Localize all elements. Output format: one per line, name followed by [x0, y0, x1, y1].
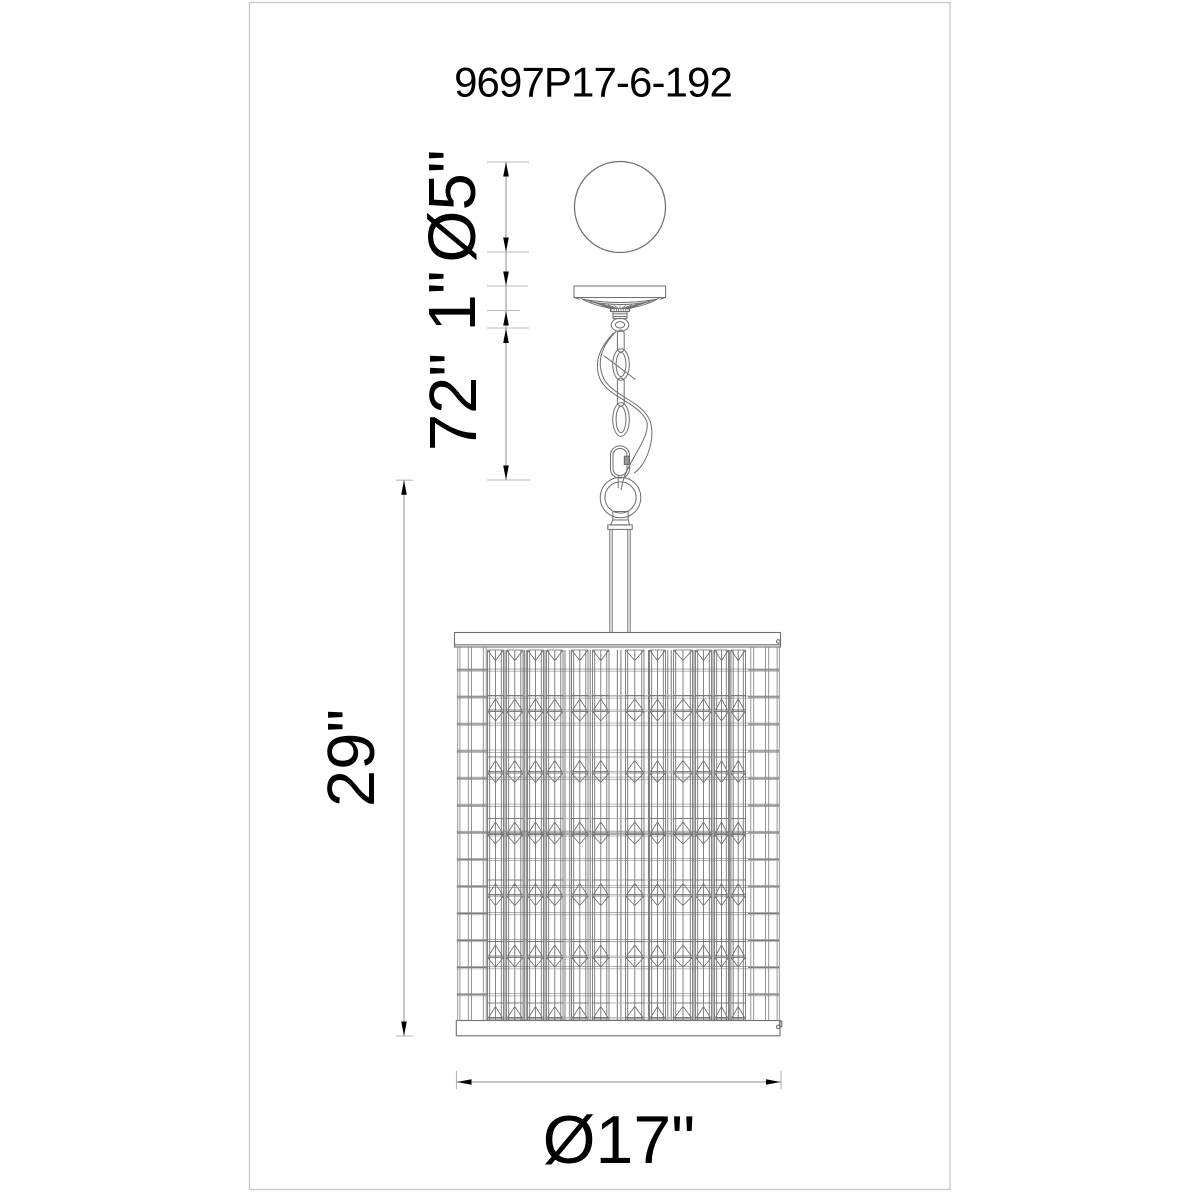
svg-text:72": 72" [416, 353, 491, 451]
svg-text:1": 1" [415, 270, 490, 331]
svg-text:Ø17": Ø17" [543, 1102, 696, 1178]
svg-text:9697P17-6-192: 9697P17-6-192 [454, 59, 732, 106]
svg-text:Ø5": Ø5" [415, 149, 490, 262]
svg-text:29": 29" [314, 709, 389, 807]
